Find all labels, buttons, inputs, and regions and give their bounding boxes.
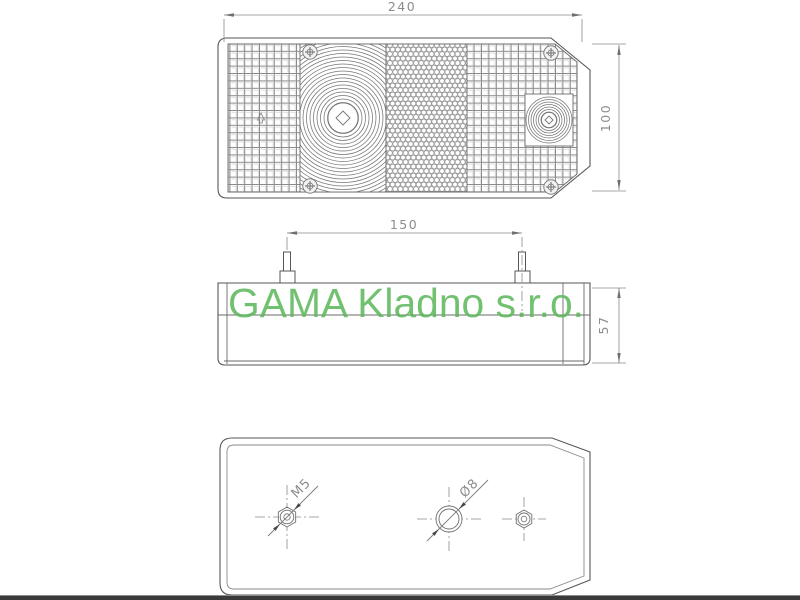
honeycomb-panel (386, 44, 467, 192)
side-view: 150 57 GAMA Kladno s.r.o. (218, 217, 626, 365)
back-view: M5 Ø8 (220, 438, 590, 595)
dim-front-height: 100 (592, 44, 626, 191)
back-outer-contour (220, 438, 590, 595)
technical-drawing: 240 100 (0, 0, 800, 600)
dim-side-height: 57 (592, 288, 626, 363)
mounting-stud-left (280, 252, 295, 283)
footer-bar (0, 595, 800, 600)
watermark-text: GAMA Kladno s.r.o. (228, 280, 584, 326)
screw-icon (544, 180, 558, 194)
dim-stud-spacing: 150 (287, 217, 522, 235)
dimension-label: 100 (598, 104, 613, 132)
front-view: 240 100 (218, 0, 626, 203)
screw-icon (303, 45, 317, 59)
mounting-stud-right (515, 252, 530, 283)
dim-front-width: 240 (224, 0, 582, 42)
dimension-label: 150 (390, 217, 418, 232)
screw-icon (303, 179, 317, 193)
dimension-label: 57 (596, 316, 611, 335)
dimension-label: 240 (388, 0, 416, 14)
side-marker-lens (525, 94, 573, 146)
screw-icon (544, 46, 558, 60)
